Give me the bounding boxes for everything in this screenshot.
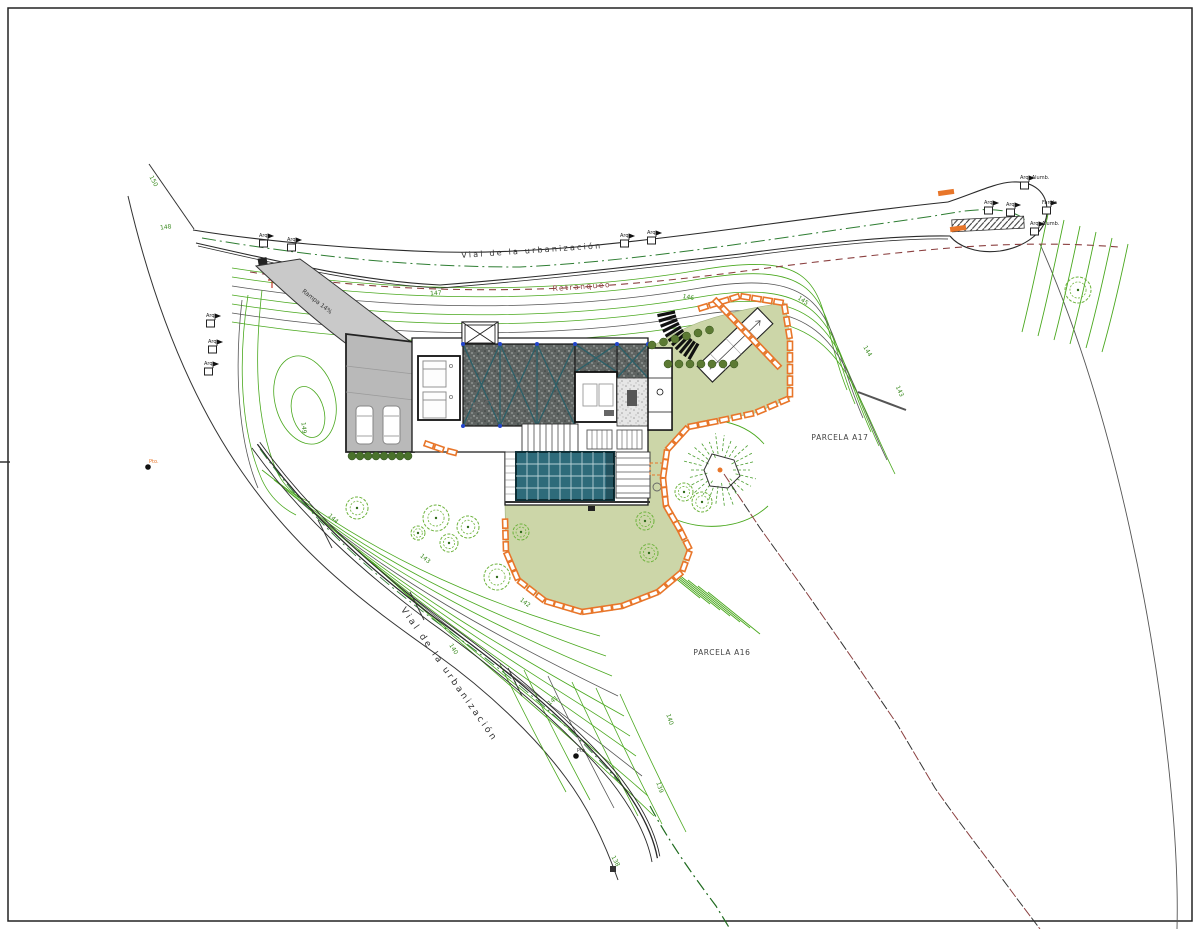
wall-block [662,487,668,496]
tree [346,497,368,519]
contour-label: 148 [160,223,172,232]
hedge-bush [388,452,396,460]
tree-trunk [520,531,522,533]
contour-line [678,574,730,616]
survey-label: Pto. [577,748,587,754]
hedge-bush [380,452,388,460]
canopy-ray [688,473,707,478]
utility-box [1031,228,1039,235]
utility-label: Arq. [206,313,217,319]
contour-label: 146 [682,293,695,302]
canopy-ray [689,479,703,486]
survey-dot [573,753,579,759]
wall-block [503,530,508,539]
shrub [708,360,716,368]
utility-label: Arq. [984,200,995,206]
tree [675,483,693,501]
utility-symbol: Arq. [206,313,220,327]
utility-label: Arq. Alumb. [1020,175,1050,181]
survey-label: Pto. [149,459,159,465]
tree [1065,277,1091,303]
utility-label: Arq. [204,361,215,367]
utility-box [1007,209,1015,216]
utility-symbol: Farola [1042,200,1057,214]
contour-line [596,688,662,824]
wall-block [661,478,667,487]
hedge-bush [348,452,356,460]
wall-block [662,459,668,469]
shrub [675,360,683,368]
contour-label: 149 [300,422,308,434]
parcel-boundary-black [724,474,1040,929]
contour-label: 140 [664,713,674,726]
utility-box [288,244,296,251]
wall-block [938,189,955,196]
tree [423,505,449,531]
tree-trunk [648,552,650,554]
utility-box [985,207,993,214]
survey-dot [145,464,151,470]
tree [484,564,510,590]
tree-trunk [435,517,437,519]
utility-symbol: Arq. [204,361,218,375]
contour-label: 145 [796,295,810,307]
wall-block [503,542,508,551]
tree [440,534,458,552]
tree [692,492,712,512]
utility-box [1021,182,1029,189]
wall-block [782,304,788,314]
pool-fitting [588,506,595,511]
utility-box [260,240,268,247]
wall-block [708,419,718,426]
shrub [719,360,727,368]
contour-line [242,295,296,515]
canopy-ray [688,453,708,464]
wall-block [698,421,708,428]
contour-line [548,676,614,808]
contour-line [238,300,258,488]
hedge-bush [372,452,380,460]
contour-label: 142 [518,597,531,610]
wall-block [661,469,667,479]
shrub [664,360,672,368]
contour-label: 139 [654,781,664,794]
shrub [683,332,691,340]
wall-block [788,341,793,350]
wall-block [788,353,793,362]
utility-label: Arq. [208,339,219,345]
site-plan-canvas: Arq.Arq.Arq.Arq.Arq.Arq.Arq. Alumb.Arq. … [0,0,1200,929]
shrub [686,360,694,368]
hedge-row [348,452,412,460]
utility-label: Arq. [287,237,298,243]
shrub [671,335,679,343]
survey-point: Pto. [145,459,159,470]
wall-block [602,605,612,611]
tree [411,526,425,540]
site-plan-page: Arq.Arq.Arq.Arq.Arq.Arq.Arq. Alumb.Arq. … [0,0,1200,929]
tree-trunk [467,526,469,528]
utility-label: Arq. [620,233,631,239]
tree-trunk [496,576,498,578]
canopy-ray [709,488,714,500]
contours-layer [232,214,1128,832]
wall-block [786,329,792,339]
utility-box [209,346,217,353]
utility-label: Arq. [259,233,270,239]
parcel-a17-label: PARCELA A17 [811,433,868,442]
shrub [706,326,714,334]
tree-trunk [448,542,450,544]
courtyard-feature [627,390,637,406]
utility-box [207,320,215,327]
shrub [694,329,702,337]
pool-steps [616,452,650,498]
wall-block [447,448,457,455]
wall-block [730,294,740,301]
canopy-ray [737,479,751,486]
wall-block [612,604,622,610]
contour-label: 143 [894,385,905,399]
wall-block [788,388,793,397]
canopy-ray [722,483,725,506]
setback-label: Retranqueo [552,280,611,293]
shrub [660,338,668,346]
contour-label: 140 [447,642,459,656]
tree-center-point [718,468,723,473]
shrub [648,341,656,349]
tree-trunk [683,491,685,493]
north-boundary-segment [149,164,194,229]
contour-line [258,290,310,502]
pool [505,452,664,511]
wall-block [744,411,754,418]
wall-block [741,294,751,300]
wall-block [698,304,708,311]
contour-line [668,506,768,526]
tree [457,516,479,538]
hedge-bush [356,452,364,460]
utility-symbol: Arq. [208,339,222,353]
wall-block [732,414,742,421]
utility-label: Farola [1042,200,1057,206]
canopy-ray [683,461,701,466]
contour-line [1086,238,1112,348]
tree-trunk [701,501,703,503]
contour-line [1038,220,1064,336]
shrub [730,360,738,368]
contour-label: 143 [418,552,431,565]
utility-box [648,237,656,244]
utility-box [1043,207,1051,214]
contour-line [708,592,760,634]
utility-label: Arq. [647,230,658,236]
road-bottom-label: Vial de la urbanización [398,605,500,744]
wall-block [763,297,773,303]
canopy-ray [702,444,709,455]
wall-block [582,608,592,614]
large-existing-tree [683,433,756,505]
east-terrain-edge [1040,244,1177,929]
wall-block [788,376,793,385]
canopy-ray [736,462,753,466]
utility-box [621,240,629,247]
contour-line [688,580,740,622]
utility-label: Arq. [1006,202,1017,208]
utility-box [205,368,213,375]
canopy-ray [722,435,724,451]
hedge-bush [404,452,412,460]
southeast-boundary [650,806,730,929]
contour-line [698,586,750,628]
survey-point: Pto. [573,748,587,759]
contour-label: 144 [861,345,873,359]
hedge-bush [364,452,372,460]
stair-tread [657,312,675,316]
wall-block [784,317,790,327]
canopy-ray [729,444,738,456]
wall-block [503,519,508,528]
wall-block [788,365,793,374]
wall-block [752,295,762,301]
tree-trunk [417,532,419,534]
contour-label: 147 [430,290,442,298]
canopy-ray [709,442,715,458]
contour-line [1102,244,1128,352]
entry-pergola [462,322,498,346]
contour-line [1070,232,1096,344]
canopy-ray [716,433,719,454]
canopy-ray [727,488,734,506]
wall-block [720,306,730,316]
tree-trunk [1077,289,1079,291]
canopy-ray [716,486,718,504]
contour-loop [264,349,345,451]
wall-block [719,416,729,423]
wall-block [592,607,602,613]
parcel-a16-label: PARCELA A16 [693,648,750,657]
tree-trunk [644,520,646,522]
tree-trunk [356,507,358,509]
wall-block [663,450,669,460]
hedge-bush [396,452,404,460]
terrace-steps [522,424,578,452]
utility-label: Arq. Alumb. [1030,221,1060,227]
shrub [697,360,705,368]
